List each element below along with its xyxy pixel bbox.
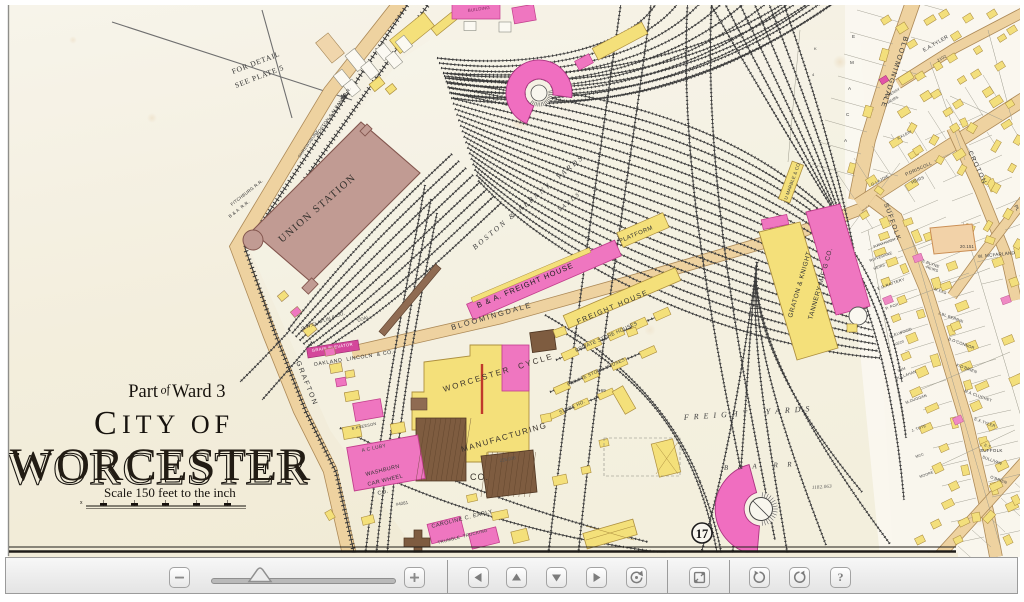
svg-text:CO.: CO. (470, 472, 489, 482)
svg-text:SUFFOLK: SUFFOLK (980, 448, 1003, 453)
svg-text:K: K (814, 46, 817, 51)
svg-text:Part: Part (128, 382, 159, 402)
svg-text:Scale 150 feet to the inch: Scale 150 feet to the inch (104, 485, 236, 500)
svg-text:17: 17 (696, 527, 709, 541)
svg-text:M: M (850, 60, 854, 65)
svg-text:WORCESTER: WORCESTER (10, 439, 313, 491)
svg-text:C: C (94, 405, 117, 442)
svg-text:20.151: 20.151 (960, 244, 974, 249)
svg-text:Ward 3: Ward 3 (172, 382, 225, 402)
svg-text:C: C (846, 112, 850, 117)
svg-text:ITY OF: ITY OF (122, 410, 234, 439)
svg-text:E: E (852, 34, 855, 39)
svg-text:●69: ●69 (598, 388, 606, 393)
